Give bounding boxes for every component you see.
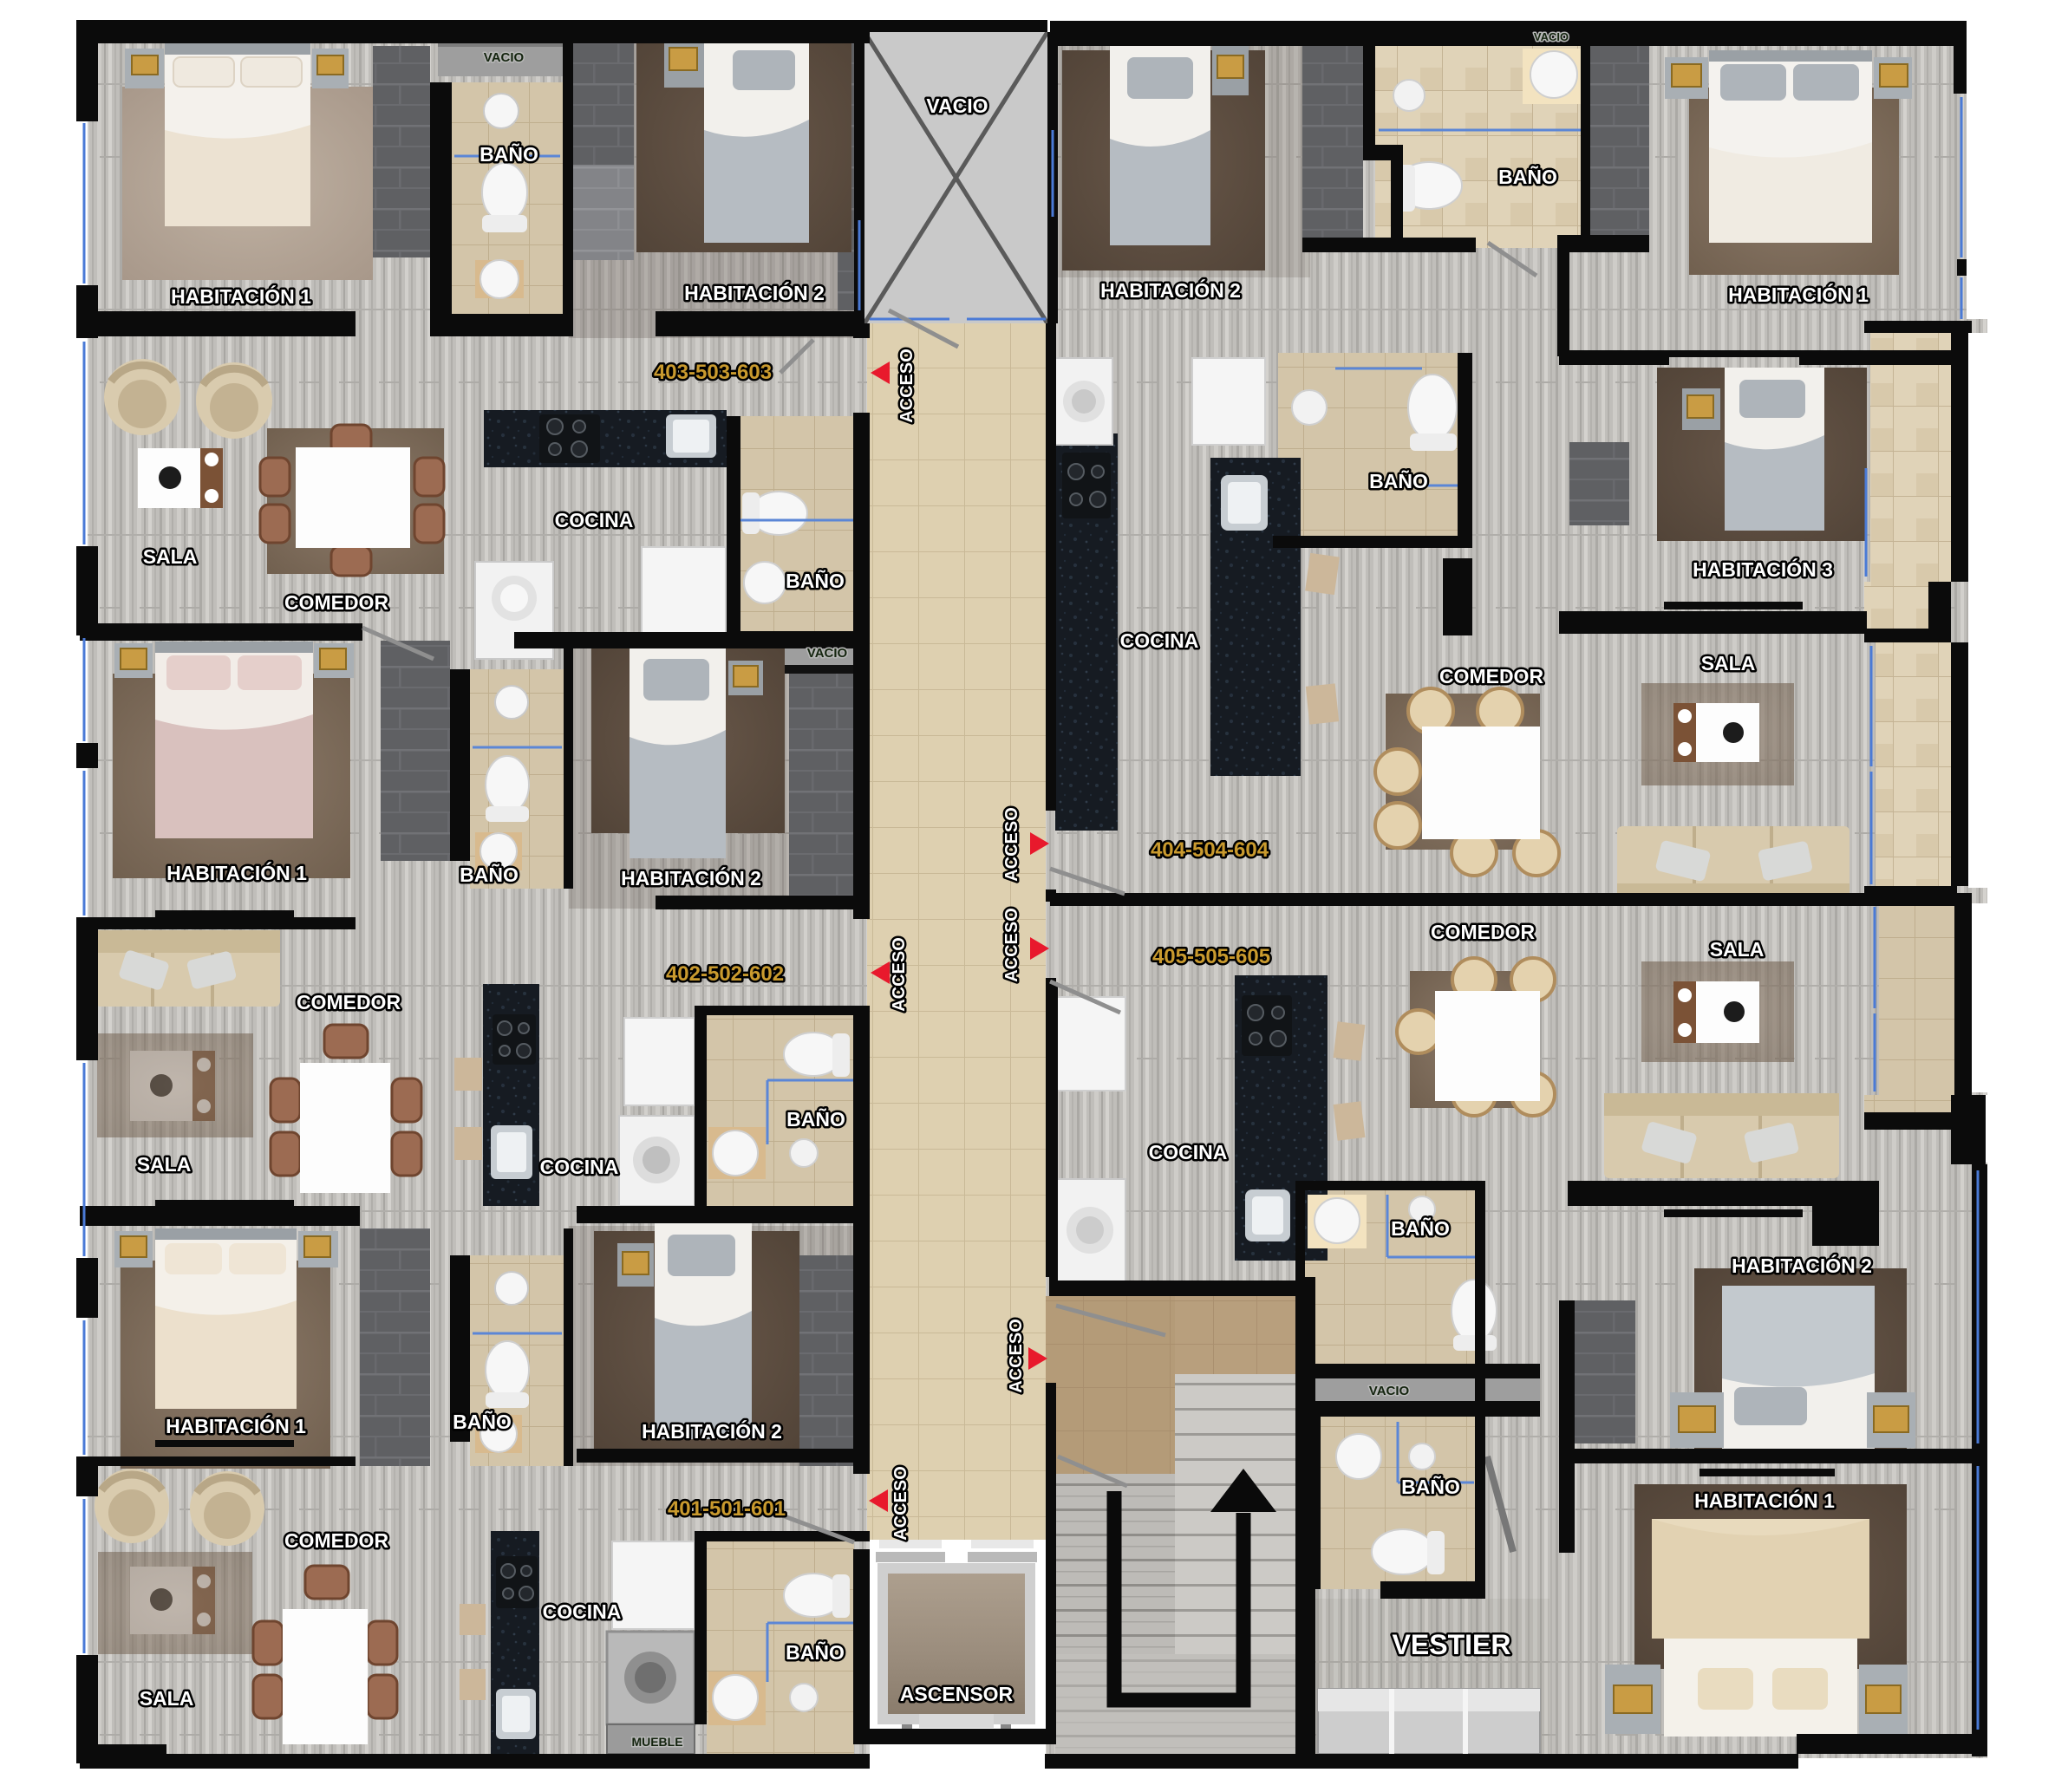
svg-text:SALA: SALA [1701,652,1756,674]
svg-text:HABITACIÓN 2: HABITACIÓN 2 [642,1419,782,1443]
svg-text:VESTIER: VESTIER [1393,1629,1511,1660]
svg-text:HABITACIÓN 2: HABITACIÓN 2 [1100,278,1241,302]
svg-text:VACIO: VACIO [1534,30,1569,43]
svg-text:ACCESO: ACCESO [1002,807,1021,882]
svg-text:HABITACIÓN 3: HABITACIÓN 3 [1693,557,1833,581]
svg-text:COCINA: COCINA [540,1156,619,1178]
svg-text:BAÑO: BAÑO [1391,1216,1450,1240]
svg-text:SALA: SALA [143,545,198,568]
svg-text:HABITACIÓN 1: HABITACIÓN 1 [1694,1489,1835,1512]
svg-text:HABITACIÓN 1: HABITACIÓN 1 [171,284,311,308]
svg-text:BAÑO: BAÑO [786,569,845,592]
svg-text:VACIO: VACIO [926,94,988,117]
svg-text:VACIO: VACIO [1369,1384,1410,1398]
svg-text:BAÑO: BAÑO [453,1410,512,1433]
svg-text:HABITACIÓN 2: HABITACIÓN 2 [621,866,761,889]
svg-text:SALA: SALA [137,1153,192,1176]
svg-text:402-502-602: 402-502-602 [666,962,784,986]
svg-text:405-505-605: 405-505-605 [1152,945,1270,968]
svg-text:BAÑO: BAÑO [479,142,538,166]
svg-text:COMEDOR: COMEDOR [1431,921,1536,943]
svg-text:HABITACIÓN 1: HABITACIÓN 1 [1728,283,1869,306]
svg-text:HABITACIÓN 2: HABITACIÓN 2 [684,281,825,304]
svg-text:COMEDOR: COMEDOR [284,1529,389,1552]
svg-text:BAÑO: BAÑO [1369,469,1428,492]
svg-text:VACIO: VACIO [807,646,848,661]
svg-text:403-503-603: 403-503-603 [654,361,772,384]
svg-text:HABITACIÓN 1: HABITACIÓN 1 [166,1414,306,1437]
svg-text:ACCESO: ACCESO [1007,1319,1026,1393]
svg-text:COCINA: COCINA [1120,629,1199,652]
svg-text:MUEBLE: MUEBLE [631,1735,682,1749]
svg-text:HABITACIÓN 2: HABITACIÓN 2 [1732,1254,1872,1277]
svg-text:BAÑO: BAÑO [786,1107,845,1131]
svg-text:ACCESO: ACCESO [1002,908,1021,982]
svg-text:HABITACIÓN 1: HABITACIÓN 1 [166,861,307,884]
svg-text:BAÑO: BAÑO [1401,1475,1460,1498]
svg-text:COCINA: COCINA [543,1600,622,1623]
svg-text:ACCESO: ACCESO [890,937,909,1012]
svg-text:ACCESO: ACCESO [897,349,917,423]
svg-text:COCINA: COCINA [555,509,634,531]
svg-text:COCINA: COCINA [1149,1141,1228,1163]
svg-text:VACIO: VACIO [484,50,525,65]
svg-text:ASCENSOR: ASCENSOR [900,1683,1014,1705]
svg-text:COMEDOR: COMEDOR [1439,665,1544,687]
svg-text:BAÑO: BAÑO [1498,165,1557,188]
svg-text:404-504-604: 404-504-604 [1151,838,1269,862]
svg-text:BAÑO: BAÑO [786,1640,845,1664]
svg-text:COMEDOR: COMEDOR [297,991,401,1013]
svg-text:SALA: SALA [1710,938,1765,961]
svg-text:COMEDOR: COMEDOR [284,591,389,614]
svg-text:ACCESO: ACCESO [891,1466,910,1541]
svg-text:BAÑO: BAÑO [460,863,519,886]
svg-text:SALA: SALA [140,1687,194,1710]
svg-text:401-501-601: 401-501-601 [668,1497,786,1521]
